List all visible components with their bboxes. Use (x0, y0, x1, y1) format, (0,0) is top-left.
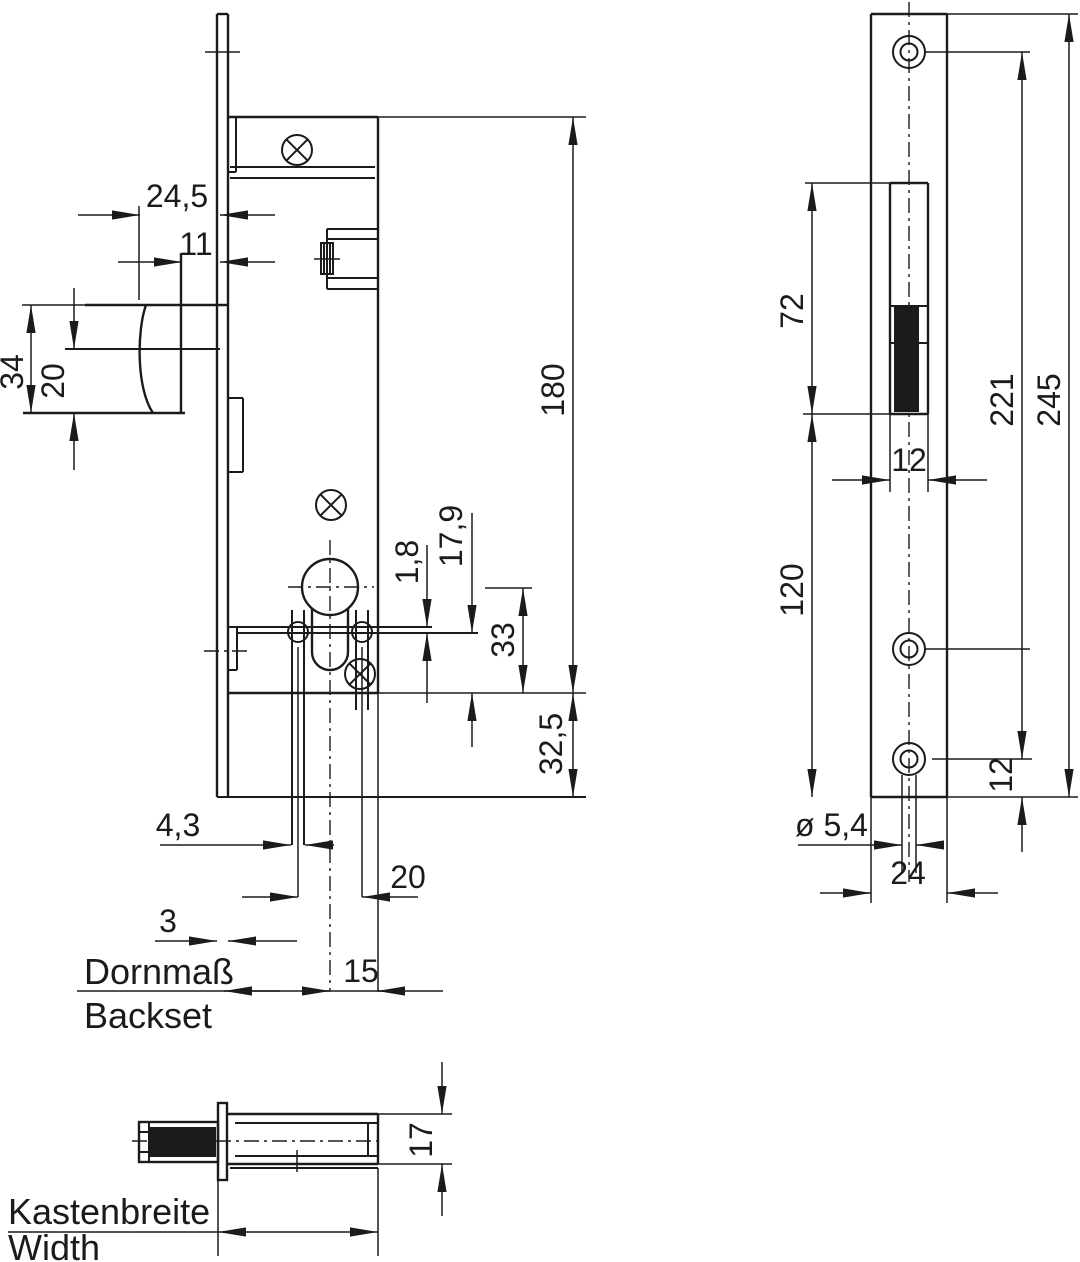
dim-case-height: 180 (535, 363, 571, 416)
dim-nut-slot: 1,8 (389, 540, 425, 584)
dim-case-thickness: 17 (403, 1122, 439, 1158)
cylinder-hole (288, 540, 374, 991)
lock-case (204, 117, 586, 693)
screw-hole (893, 36, 1030, 68)
dim-latch-protrusion: 11 (179, 226, 212, 262)
fixing-hole (352, 610, 372, 897)
bottom-view: 17 Kastenbreite Width (8, 1062, 452, 1262)
dim-slot-width: 12 (891, 442, 927, 478)
dim-plate-width: 24 (890, 855, 926, 891)
dim-plate-length: 245 (1031, 373, 1067, 426)
dim-slot-to-bottom: 120 (774, 563, 810, 616)
screw-hole (893, 633, 1030, 665)
fixing-hole (288, 610, 308, 897)
backset-label-de: Dornmaß (84, 951, 234, 992)
dim-fixing-hole-spacing: 20 (390, 859, 426, 895)
dim-centre-to-case-edge: 15 (343, 953, 379, 989)
screw-head-icon (345, 659, 375, 689)
faceplate (205, 14, 586, 797)
screw-head-icon (316, 490, 346, 520)
dimensions-lock-body: 24,5 11 34 20 180 1,8 17,9 33 32,5 4,3 (0, 117, 573, 1036)
mortise-lock-technical-drawing: 24,5 11 34 20 180 1,8 17,9 33 32,5 4,3 (0, 0, 1080, 1262)
dim-cylinder-to-case-bottom: 33 (485, 622, 521, 658)
dim-slot-length: 72 (774, 293, 810, 329)
technical-drawing-page: 24,5 11 34 20 180 1,8 17,9 33 32,5 4,3 (0, 0, 1080, 1262)
strike-plate-view: 72 120 221 245 12 12 ø 5,4 24 (774, 2, 1078, 903)
dim-fixing-hole: 4,3 (156, 807, 200, 843)
lock-body-view: 24,5 11 34 20 180 1,8 17,9 33 32,5 4,3 (0, 14, 586, 1036)
dim-latch-head-depth: 24,5 (146, 178, 208, 214)
dim-faceplate-thickness: 3 (159, 903, 177, 939)
width-label-en: Width (8, 1227, 100, 1262)
dim-latch-height: 20 (35, 363, 71, 399)
width-label-de: Kastenbreite (8, 1191, 210, 1232)
screw-head-icon (282, 135, 312, 165)
dim-hole-to-edge: 12 (983, 757, 1019, 793)
follower-hub (314, 229, 379, 289)
dim-latch-total-height: 34 (0, 354, 30, 390)
latch-bolt-section (139, 1122, 218, 1162)
dim-hole-diameter: ø 5,4 (795, 807, 868, 843)
latch-bolt-in-slot (894, 306, 919, 412)
dim-case-to-faceplate-end: 32,5 (533, 713, 569, 775)
backset-label-en: Backset (84, 995, 212, 1036)
dim-hole-spacing: 221 (984, 373, 1020, 426)
dim-cylinder-offset: 17,9 (433, 505, 469, 567)
